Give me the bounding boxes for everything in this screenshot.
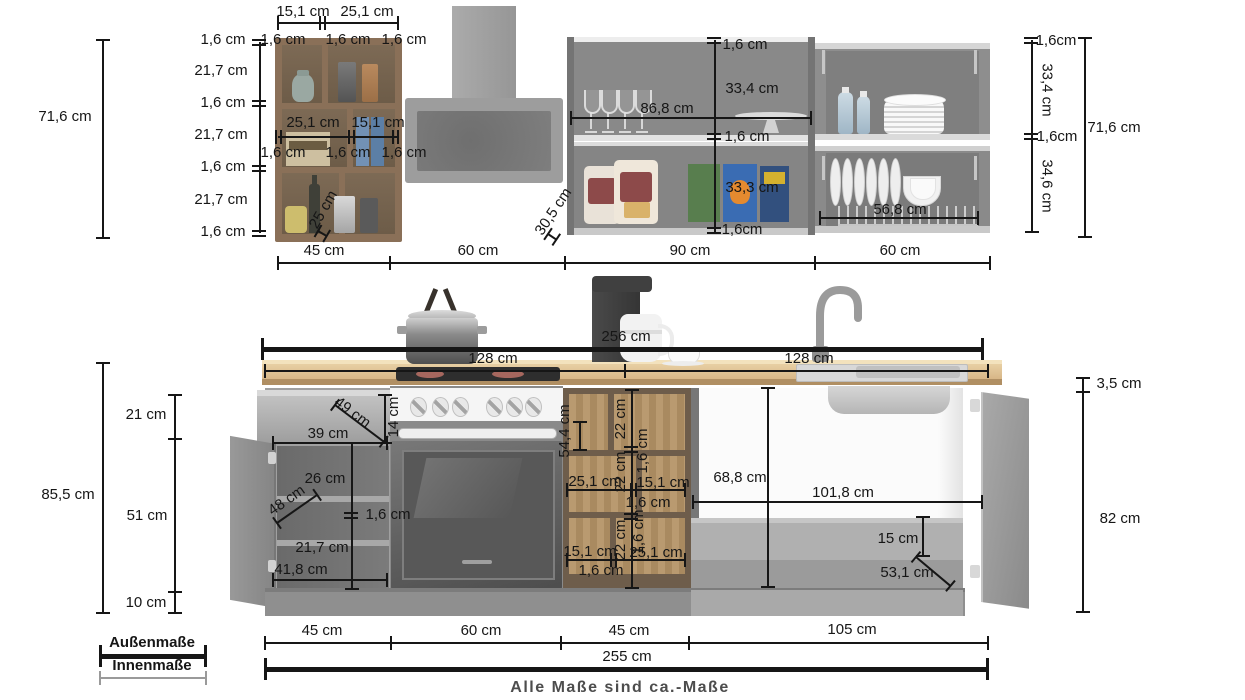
wine-glass-base bbox=[619, 131, 631, 133]
water-bottle bbox=[857, 96, 870, 134]
dim-label-tl-topw: 15,1 cm bbox=[276, 4, 329, 21]
dim-label-top-width: 60 cm bbox=[458, 243, 499, 260]
dim-line-bl-inner bbox=[273, 579, 387, 581]
dim-label-bm-r1: 25,1 cm bbox=[568, 474, 621, 491]
dim-label-top-width: 60 cm bbox=[880, 243, 921, 260]
dim-line-bl-segs bbox=[174, 395, 176, 613]
dim-label-bm-height: 54,4 cm bbox=[557, 404, 574, 457]
drawer-lip bbox=[257, 390, 390, 396]
range-hood-chimney bbox=[452, 6, 516, 99]
wine-glass-base bbox=[602, 131, 614, 133]
rack-plate bbox=[866, 158, 877, 206]
dim-label-bl-height: 85,5 cm bbox=[41, 487, 94, 504]
dim-line-top-widths bbox=[278, 262, 990, 264]
dim-label-tl-col: 21,7 cm bbox=[194, 192, 247, 209]
dim-label-bottom-total: 255 cm bbox=[602, 649, 651, 666]
dim-label-bl-shelf: 26 cm bbox=[305, 471, 346, 488]
rack-plate bbox=[830, 158, 841, 206]
dim-label-bm-g1: 1,6 cm bbox=[625, 495, 670, 512]
dim-line-br-height bbox=[767, 388, 769, 587]
chips-label bbox=[620, 172, 652, 202]
dim-label-ms-upper: 33,4 cm bbox=[725, 81, 778, 98]
unit-edge bbox=[815, 226, 990, 233]
dim-label-bl-inner: 41,8 cm bbox=[274, 562, 327, 579]
dim-tick bbox=[252, 100, 266, 102]
dim-label-tl-midg: 1,6 cm bbox=[381, 145, 426, 162]
legend-inner-label: Innenmaße bbox=[112, 658, 191, 675]
jar-lid bbox=[297, 70, 309, 76]
rack-plate bbox=[890, 158, 901, 206]
dim-line-br-inner bbox=[693, 501, 982, 503]
rack-plate bbox=[854, 158, 865, 206]
chips-art bbox=[624, 202, 650, 218]
dim-label-counter-total: 256 cm bbox=[601, 329, 650, 346]
dim-label-bottom-width: 105 cm bbox=[827, 622, 876, 639]
wine-glass-icon bbox=[618, 90, 635, 114]
water-bottle bbox=[838, 92, 853, 134]
unit-rail bbox=[822, 50, 825, 74]
dim-label-ru-inner: 56,8 cm bbox=[873, 202, 926, 219]
dim-line-br-door bbox=[1082, 392, 1084, 612]
dim-line-tl-col bbox=[259, 42, 261, 233]
dim-tick bbox=[344, 512, 358, 514]
unit-rail bbox=[822, 156, 825, 180]
dim-tick bbox=[168, 591, 182, 593]
dim-label-bl-seg: 51 cm bbox=[127, 508, 168, 525]
pot-handle bbox=[397, 326, 407, 334]
oven-knob bbox=[486, 397, 503, 417]
canister bbox=[362, 64, 378, 102]
dim-label-br-diag: 53,1 cm bbox=[880, 565, 933, 582]
dim-label-br-height: 68,8 cm bbox=[713, 470, 766, 487]
dim-tick bbox=[390, 636, 392, 650]
jar bbox=[285, 206, 307, 233]
wine-glass-stem bbox=[624, 112, 626, 129]
dim-label-ru-height: 71,6 cm bbox=[1087, 120, 1140, 137]
dim-line-counter-halves bbox=[265, 370, 988, 372]
plinth-sink-section bbox=[691, 590, 963, 616]
dim-label-ms-mid: 1,6 cm bbox=[724, 129, 769, 146]
dim-label-counter-right: 128 cm bbox=[784, 351, 833, 368]
dim-line-tl-height bbox=[102, 40, 104, 238]
hinge bbox=[268, 452, 276, 464]
oven-knob bbox=[506, 397, 523, 417]
oven-knob bbox=[452, 397, 469, 417]
shelf-edge bbox=[567, 142, 815, 146]
oven-brand bbox=[462, 560, 492, 564]
bottle-cap bbox=[842, 87, 849, 93]
dim-label-tl-midw: 15,1 cm bbox=[351, 115, 404, 132]
dim-label-bl-seg: 21 cm bbox=[126, 407, 167, 424]
unit-edge bbox=[815, 146, 990, 151]
dim-label-ru-top: 1,6cm bbox=[1036, 33, 1077, 50]
dim-label-tl-col: 1,6 cm bbox=[200, 159, 245, 176]
dim-label-tl-height: 71,6 cm bbox=[38, 109, 91, 126]
dim-label-ru-lower: 34,6 cm bbox=[1038, 159, 1055, 212]
dim-line-bl-drawerw bbox=[273, 442, 387, 444]
oven-handle bbox=[398, 428, 557, 439]
dim-tick bbox=[624, 364, 626, 378]
rack-plate bbox=[842, 158, 853, 206]
wine-glass-icon bbox=[601, 90, 618, 114]
dimension-diagram: 71,6 cm 1,6 cm 21,7 cm 1,6 cm 21,7 cm 1,… bbox=[0, 0, 1245, 700]
dim-label-tl-col: 1,6 cm bbox=[200, 95, 245, 112]
hinge bbox=[970, 565, 980, 578]
dim-label-br-top: 3,5 cm bbox=[1096, 376, 1141, 393]
open-door-right bbox=[981, 392, 1029, 609]
dim-tick bbox=[707, 227, 721, 229]
dim-label-ms-bottom: 1,6cm bbox=[722, 222, 763, 239]
dim-label-br-plinth: 15 cm bbox=[878, 531, 919, 548]
dim-label-top-width: 45 cm bbox=[304, 243, 345, 260]
dim-label-ms-inner: 86,8 cm bbox=[640, 101, 693, 118]
dim-tick bbox=[275, 130, 277, 144]
dim-line-ms-inner bbox=[571, 117, 811, 119]
dim-tick bbox=[252, 165, 266, 167]
wine-glass-base bbox=[585, 131, 597, 133]
dim-line-bottom-widths bbox=[265, 642, 988, 644]
dim-label-tl-topw: 25,1 cm bbox=[340, 4, 393, 21]
dim-label-tl-col: 21,7 cm bbox=[194, 127, 247, 144]
dim-line-ms bbox=[714, 40, 716, 232]
wine-glass-icon bbox=[584, 90, 601, 114]
dim-tick bbox=[560, 636, 562, 650]
dim-label-bm-v: 22 cm bbox=[613, 399, 630, 440]
dim-label-tl-col: 1,6 cm bbox=[200, 32, 245, 49]
canister bbox=[338, 62, 356, 102]
dim-tick bbox=[252, 230, 266, 232]
unit-edge bbox=[815, 134, 990, 140]
shelf-edge bbox=[567, 228, 815, 235]
chips-label bbox=[588, 178, 616, 204]
dim-label-bm-v: 1,6 cm bbox=[635, 428, 652, 473]
bottle-cap bbox=[860, 91, 867, 97]
coffee-maker-top bbox=[592, 276, 652, 292]
oven-knob bbox=[525, 397, 542, 417]
saucer bbox=[662, 361, 704, 366]
dim-label-bottom-width: 45 cm bbox=[609, 623, 650, 640]
shelf-edge bbox=[567, 37, 815, 42]
unit-rail bbox=[974, 50, 977, 74]
dim-line-bl-height bbox=[102, 363, 104, 613]
canister bbox=[360, 198, 378, 233]
legend-inner-line bbox=[100, 677, 206, 679]
shelf-side bbox=[808, 37, 815, 235]
wine-glass-base bbox=[636, 131, 648, 133]
dim-line-ru bbox=[1031, 40, 1033, 232]
rack-plate bbox=[878, 158, 889, 206]
plate-stack-top bbox=[884, 94, 946, 106]
dim-label-bl-lower: 21,7 cm bbox=[295, 540, 348, 557]
range-hood-panel bbox=[417, 111, 551, 171]
dim-label-counter-left: 128 cm bbox=[468, 351, 517, 368]
dim-line-tl-topw bbox=[278, 22, 398, 24]
dim-line-bl-center bbox=[351, 443, 353, 589]
pot-handle bbox=[477, 326, 487, 334]
bowl bbox=[910, 178, 936, 200]
dim-label-top-width: 90 cm bbox=[670, 243, 711, 260]
dim-label-br-door: 82 cm bbox=[1100, 511, 1141, 528]
dim-tick bbox=[168, 438, 182, 440]
dim-label-tl-midw: 25,1 cm bbox=[286, 115, 339, 132]
dim-label-bm-r2: 25,1 cm bbox=[629, 545, 682, 562]
dim-label-br-inner: 101,8 cm bbox=[812, 485, 874, 502]
dim-tick bbox=[707, 133, 721, 135]
hinge bbox=[970, 399, 980, 412]
dim-label-tl-topg: 1,6 cm bbox=[260, 32, 305, 49]
dim-label-ms-lower: 33,3 cm bbox=[725, 180, 778, 197]
wine-glass-stem bbox=[607, 112, 609, 129]
dim-tick bbox=[688, 636, 690, 650]
dim-label-tl-col: 1,6 cm bbox=[200, 224, 245, 241]
oven-knob bbox=[432, 397, 449, 417]
dim-label-tl-midg: 1,6 cm bbox=[260, 145, 305, 162]
dim-line-bm-height bbox=[579, 422, 581, 450]
oven-reflection bbox=[414, 458, 523, 518]
dim-line-br-top bbox=[1082, 378, 1084, 392]
dim-tick bbox=[564, 256, 566, 270]
footer-note: Alle Maße sind ca.-Maße bbox=[510, 679, 729, 697]
bottle-neck bbox=[312, 175, 317, 186]
dim-line-counter-total bbox=[262, 347, 983, 352]
dim-label-tl-midg: 1,6 cm bbox=[325, 145, 370, 162]
dim-label-bm-r2: 15,1 cm bbox=[563, 544, 616, 561]
dim-label-bl-gap: 1,6 cm bbox=[365, 507, 410, 524]
wine-glass-stem bbox=[590, 112, 592, 129]
unit-edge bbox=[815, 43, 990, 49]
legend-outer-label: Außenmaße bbox=[109, 635, 195, 652]
dim-tick bbox=[1025, 231, 1039, 233]
sink-basin-rim bbox=[856, 366, 960, 378]
dim-label-bottom-width: 60 cm bbox=[461, 623, 502, 640]
pot-body bbox=[406, 318, 478, 364]
dim-label-tl-topg: 1,6 cm bbox=[325, 32, 370, 49]
dim-label-bl-drawerw: 39 cm bbox=[308, 426, 349, 443]
dim-label-ru-upper: 33,4 cm bbox=[1038, 63, 1055, 116]
dim-label-bm-g2: 1,6 cm bbox=[578, 563, 623, 580]
dim-label-bl-seg: 10 cm bbox=[126, 595, 167, 612]
dim-tick bbox=[707, 37, 721, 39]
dim-tick bbox=[814, 256, 816, 270]
dim-line-tl-midw bbox=[278, 136, 398, 138]
dim-line-br-plinth bbox=[922, 517, 924, 556]
shelf-edge bbox=[567, 135, 815, 141]
dim-label-bottom-width: 45 cm bbox=[302, 623, 343, 640]
oven-knob bbox=[410, 397, 427, 417]
dim-label-tl-col: 21,7 cm bbox=[194, 63, 247, 80]
dim-tick bbox=[348, 130, 350, 144]
dim-label-ru-mid: 1,6cm bbox=[1037, 129, 1078, 146]
dim-line-ru-height bbox=[1084, 38, 1086, 237]
dim-label-ms-top: 1,6 cm bbox=[722, 37, 767, 54]
unit-rail bbox=[974, 156, 977, 180]
dim-tick bbox=[392, 130, 394, 144]
dim-label-bm-r1: 15,1 cm bbox=[636, 475, 689, 492]
dim-tick bbox=[389, 256, 391, 270]
sink-basin-under bbox=[828, 386, 950, 414]
dim-line-bottom-total bbox=[265, 667, 988, 672]
dim-label-bl-drawerh: 14 cm bbox=[386, 397, 403, 438]
jar bbox=[292, 74, 314, 102]
dim-label-tl-topg: 1,6 cm bbox=[381, 32, 426, 49]
